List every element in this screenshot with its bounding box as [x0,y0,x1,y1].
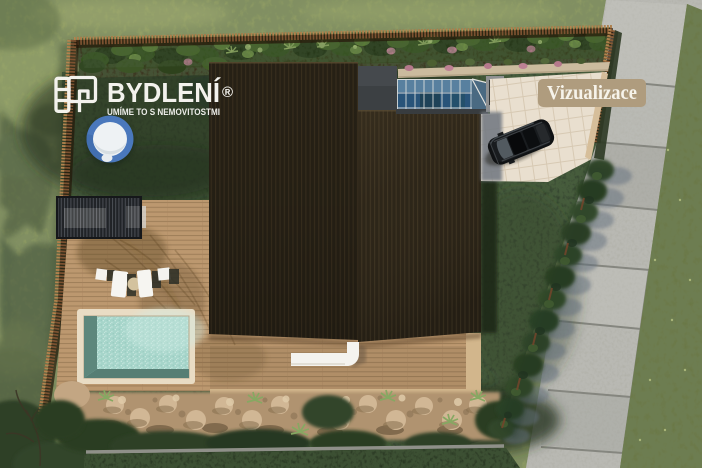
svg-text:Vizualizace: Vizualizace [547,82,637,104]
svg-text:BYDLENÍ: BYDLENÍ [107,77,221,108]
svg-text:®: ® [222,84,233,101]
svg-text:UMÍME TO S NEMOVITOSTMI: UMÍME TO S NEMOVITOSTMI [107,107,220,117]
